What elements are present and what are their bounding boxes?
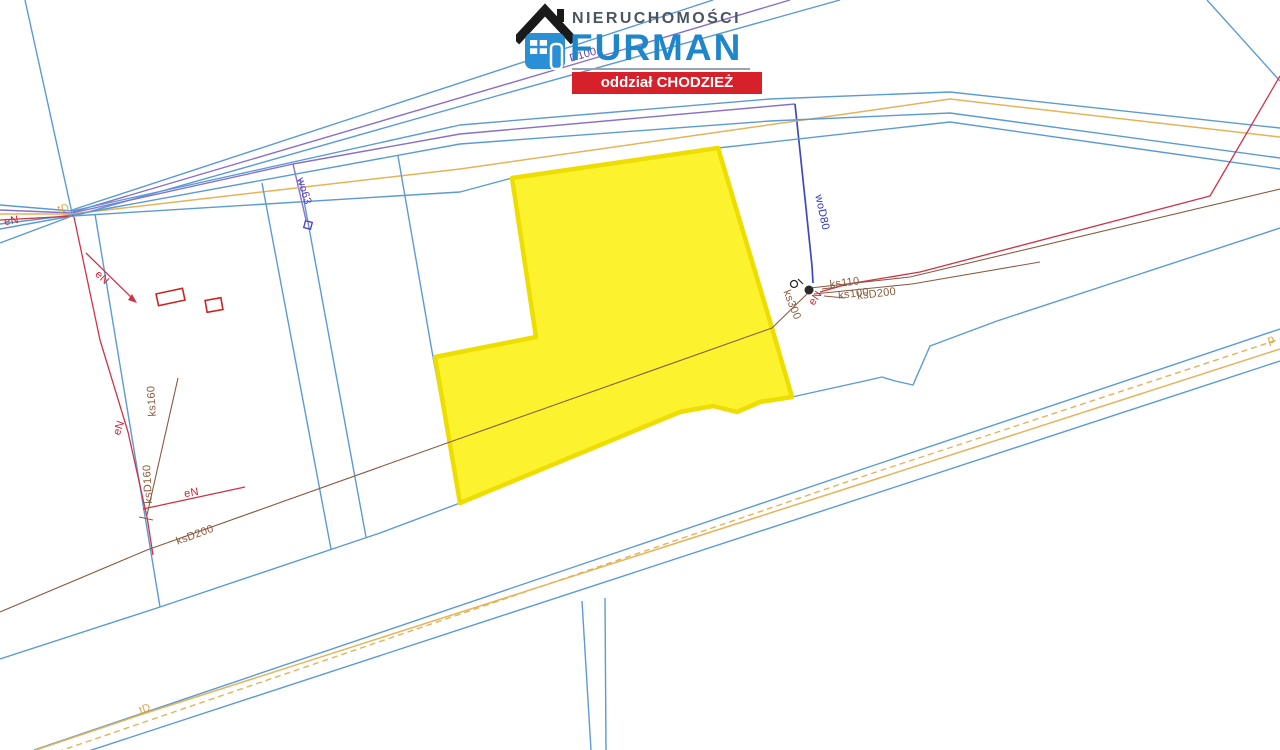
brand-name-main: FURMAN (570, 29, 768, 66)
label-ks160: ks160 (145, 385, 159, 416)
building-1 (156, 288, 185, 305)
building-2 (205, 298, 223, 313)
label-eN-topleft: eN (3, 214, 20, 228)
label-ksD200-left: ksD200 (175, 523, 216, 548)
label-tD-bottom: tD (138, 702, 153, 717)
highlighted-parcel[interactable] (435, 148, 792, 503)
label-woD80: woD80 (812, 193, 831, 231)
brand-divider (572, 68, 750, 70)
label-tD-topleft: tD (57, 202, 71, 216)
line-strip-boundary-b (605, 598, 606, 750)
line-woD80-line (795, 104, 813, 283)
house-icon (516, 2, 574, 72)
line-steep-top-right (1207, 0, 1280, 81)
manhole-open (791, 281, 798, 288)
line-brown-ks-right-a (810, 189, 1280, 288)
branch-banner: oddział CHODZIEŻ (572, 72, 762, 94)
line-strip-boundary-a (582, 601, 591, 750)
label-eN-arrow: eN (93, 268, 112, 287)
manhole-tick (798, 279, 803, 284)
label-p-right: p (1265, 331, 1276, 346)
map-stage[interactable]: eNtDD100wo63woD80ks110ks100ksD200eNks300… (0, 0, 1280, 750)
agency-logo: NIERUCHOMOŚCI FURMAN oddział CHODZIEŻ (498, 2, 768, 98)
line-boundary-2a (262, 183, 331, 549)
brand-name-top: NIERUCHOMOŚCI (572, 10, 768, 28)
cadastral-map: eNtDD100wo63woD80ks110ks100ksD200eNks300… (0, 0, 1280, 750)
label-ksD160: ksD160 (141, 464, 155, 504)
label-eN-mid: eN (183, 486, 200, 500)
line-red-eN-vertical (74, 217, 153, 555)
line-steep-top-left (25, 0, 72, 213)
